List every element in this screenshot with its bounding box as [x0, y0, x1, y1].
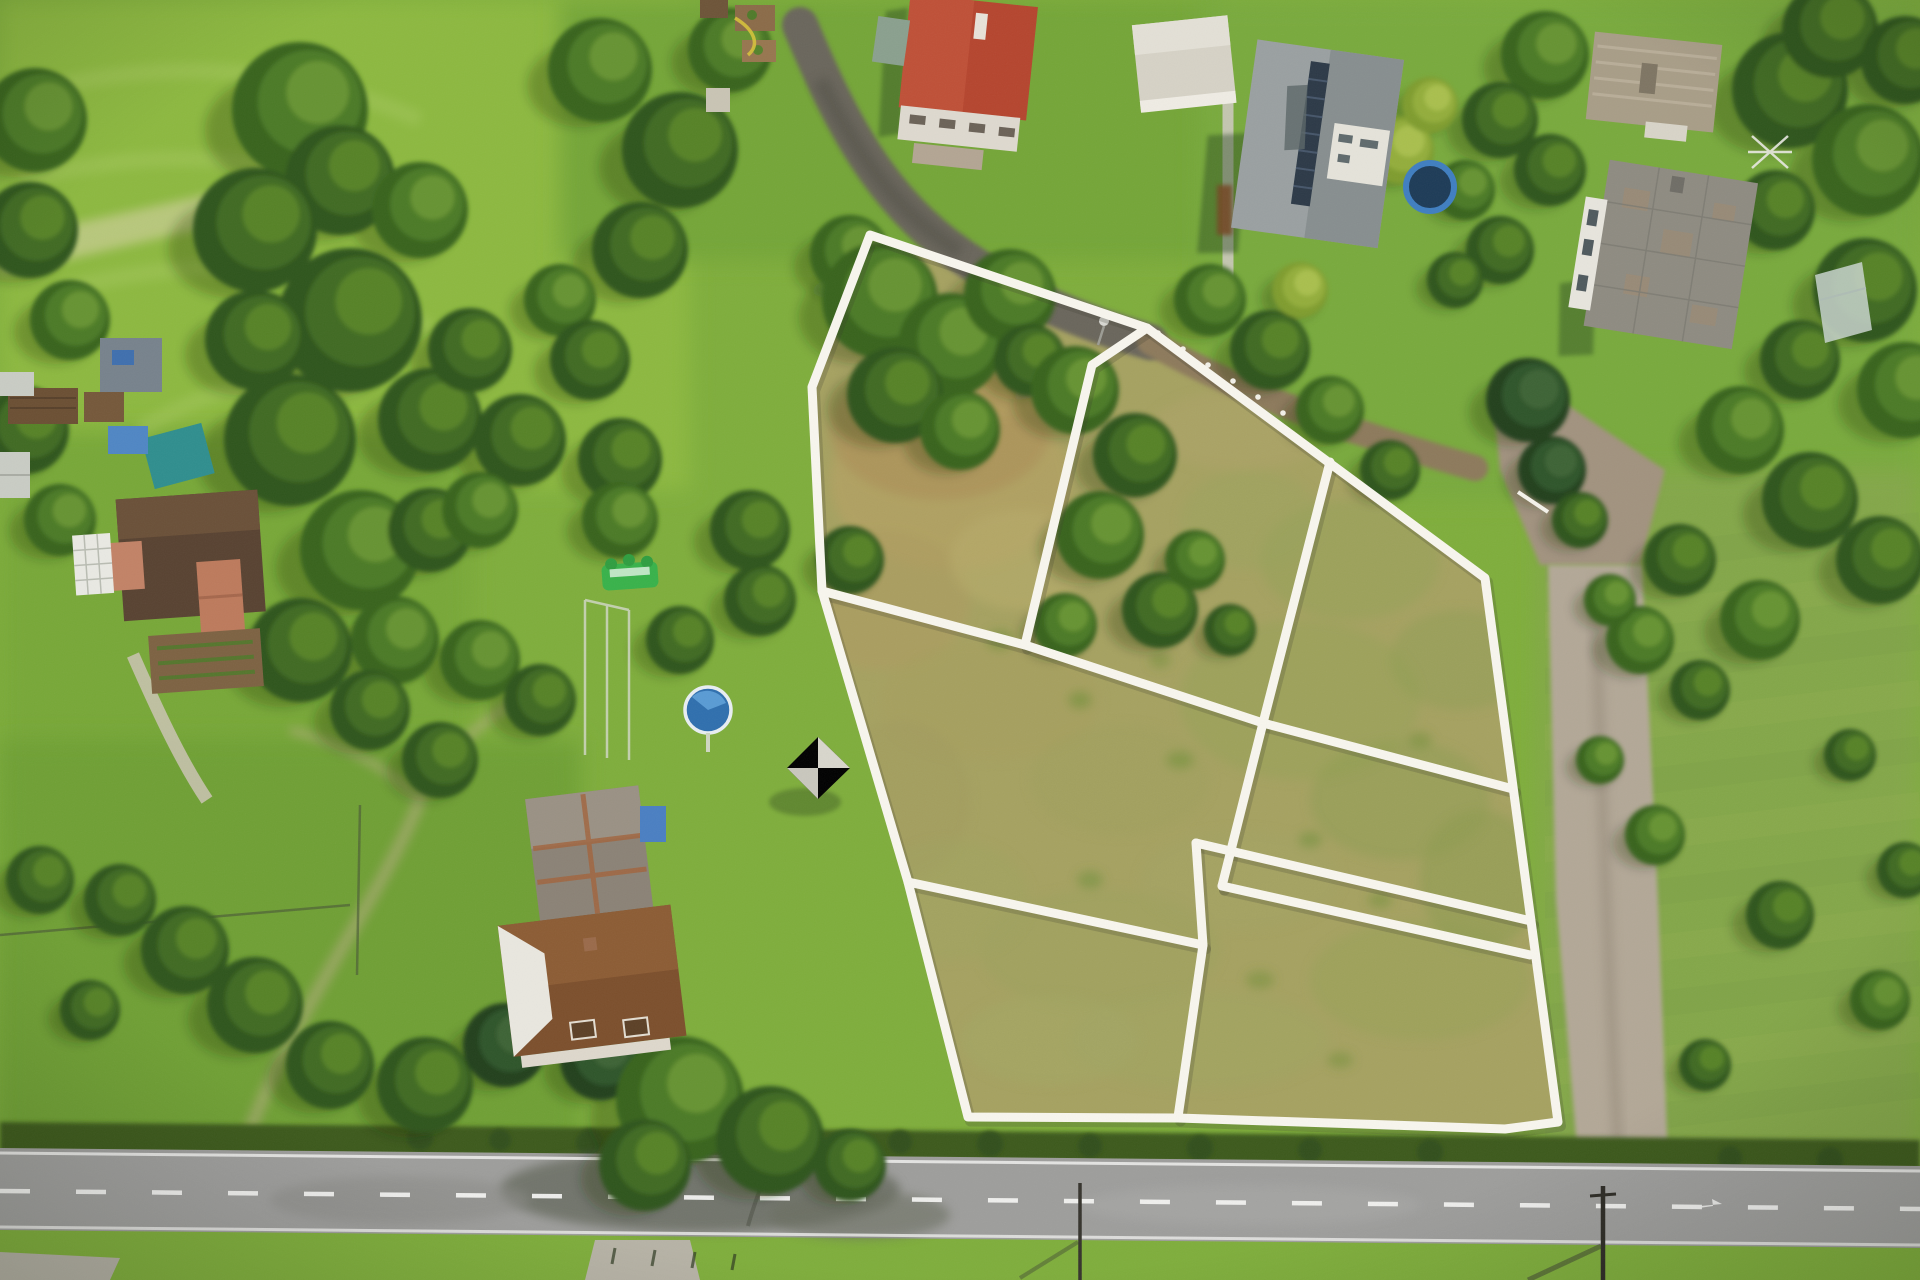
vignette [0, 0, 1920, 1280]
aerial-photo: Top-down aerial photo of a rural propert… [0, 0, 1920, 1280]
aerial-photo-canvas: Green meadows [0, 0, 1920, 1280]
